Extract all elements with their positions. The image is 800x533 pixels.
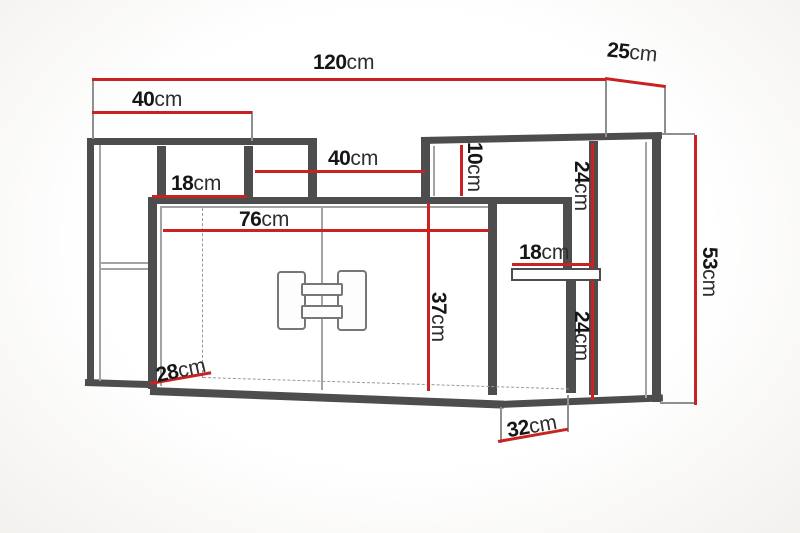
interior-dashed-vertical (202, 208, 203, 378)
dim-label-main-inner-width: 76cm (239, 209, 289, 231)
dim-label-left-top-width: 40cm (132, 89, 182, 111)
left-tower-shelf-line2 (99, 268, 148, 270)
handle-top-rail (301, 283, 343, 296)
dim-line-main-inner-width (163, 229, 489, 232)
door-seam-line (321, 207, 323, 390)
ext-line-25-left (605, 78, 607, 137)
cabinet-top-panel-edge (87, 138, 317, 145)
left-niche-left-frame (157, 146, 166, 199)
dim-label-top-depth: 25cm (606, 39, 658, 66)
dim-label-bottom-left-depth: 28cm (147, 353, 215, 390)
dim-label-total-width: 120cm (313, 52, 375, 74)
right-tower-bottom-edge (499, 394, 663, 408)
dim-label-main-inner-height: 37cm (426, 285, 450, 349)
handle-left-plate (277, 271, 306, 330)
handle-right-plate (337, 270, 367, 331)
main-box-bottom-edge (150, 387, 504, 409)
ext-line-53-top (662, 133, 695, 135)
left-tower-shelf-line (99, 262, 148, 264)
right-shelf (511, 268, 601, 281)
dim-label-lower-niche-height: 24cm (569, 304, 593, 368)
dim-line-top-depth (605, 77, 666, 87)
dim-label-right-shelf-width: 18cm (519, 242, 569, 264)
dimension-diagram: 120cm 25cm 40cm 18cm 40cm 10cm 24cm 53cm… (0, 0, 800, 533)
ext-line-40top-right (251, 111, 253, 141)
main-box-inner-top-line (160, 206, 488, 208)
dim-label-upper-niche-height: 24cm (569, 154, 593, 218)
ext-line-25-right (664, 85, 666, 135)
main-box-inner-left-line (160, 206, 162, 386)
dim-line-left-top-width (92, 111, 252, 114)
dim-label-middle-gap: 40cm (328, 148, 378, 170)
left-niche-right-frame (244, 146, 253, 199)
right-tower-top-edge (421, 132, 662, 144)
ext-line-left (92, 78, 94, 139)
dim-line-left-niche-width (152, 195, 247, 198)
main-box-right-frame (488, 199, 497, 395)
main-box-left-frame (148, 199, 157, 389)
dim-line-middle-gap (255, 170, 425, 173)
right-tower-right-wall (652, 136, 661, 402)
left-tower-left-wall (87, 141, 94, 384)
interior-dashed-horizontal (203, 377, 569, 389)
main-box-top-edge (148, 197, 572, 204)
dim-label-top-strip-height: 10cm (462, 135, 486, 199)
top-strip-inner-line (433, 146, 435, 196)
dim-label-bottom-right-depth: 32cm (498, 410, 565, 445)
ext-line-53-bottom (660, 402, 695, 404)
ext-line-32-right (567, 395, 569, 432)
handle-bottom-rail (301, 305, 343, 319)
right-column-inner-line (645, 142, 647, 398)
left-tower-bottom-edge (85, 379, 154, 388)
dim-label-left-niche-width: 18cm (171, 173, 221, 195)
dim-label-total-height: 53cm (697, 240, 721, 304)
dim-line-total-width (92, 78, 606, 81)
